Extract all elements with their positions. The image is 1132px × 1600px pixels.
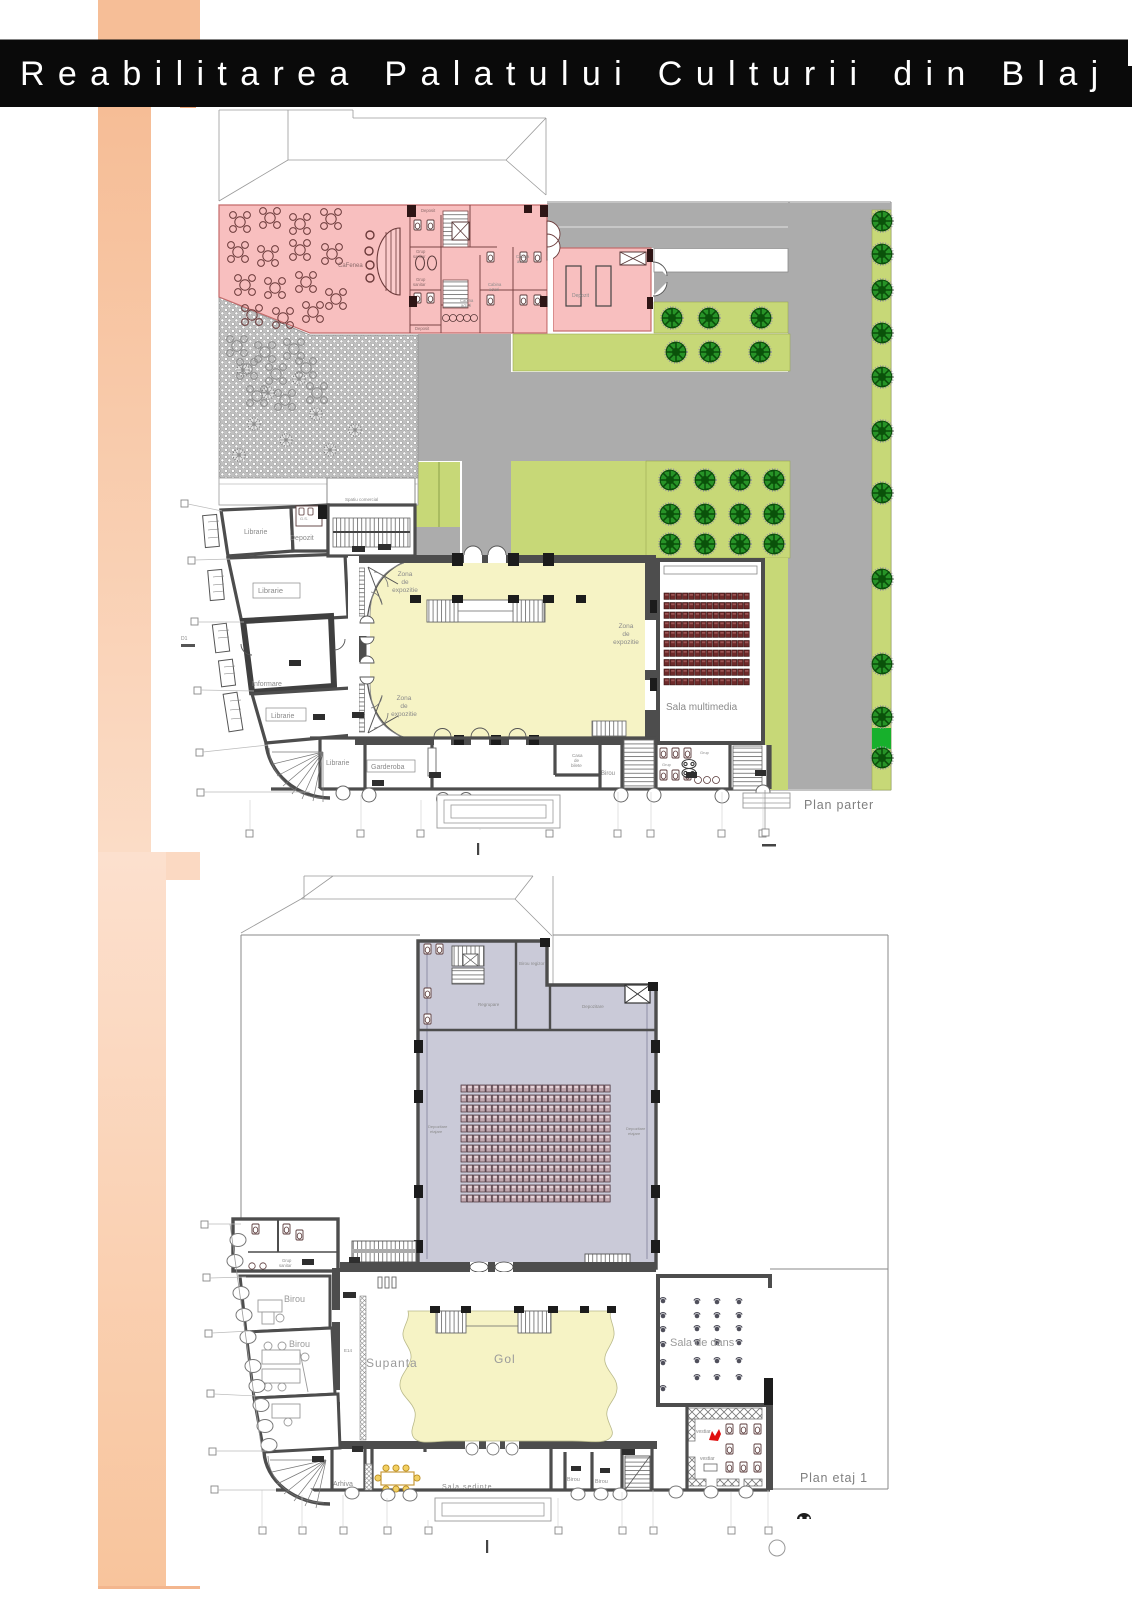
svg-text:Deposit: Deposit — [421, 208, 436, 213]
svg-text:E14: E14 — [344, 1348, 353, 1353]
svg-text:Birou regizor: Birou regizor — [519, 961, 545, 966]
svg-text:sanitar: sanitar — [413, 254, 426, 259]
svg-text:de: de — [400, 703, 408, 710]
svg-text:Librarie: Librarie — [258, 586, 283, 595]
svg-text:bilete: bilete — [571, 763, 582, 768]
svg-text:expozitie: expozitie — [392, 587, 418, 594]
svg-text:CaFenea: CaFenea — [338, 263, 363, 269]
svg-text:etajare: etajare — [628, 1131, 641, 1136]
svg-text:actori: actori — [517, 259, 527, 264]
svg-text:Grup: Grup — [662, 762, 672, 767]
svg-text:Deposit: Deposit — [415, 326, 430, 331]
svg-text:Librarie: Librarie — [244, 529, 267, 536]
svg-text:Supanta: Supanta — [366, 1356, 418, 1370]
svg-text:Zona: Zona — [397, 695, 412, 702]
svg-text:Librarie: Librarie — [271, 713, 294, 720]
svg-text:vestiar: vestiar — [696, 1429, 711, 1435]
svg-text:Spatiu comercial: Spatiu comercial — [345, 497, 378, 502]
svg-text:Depozitare: Depozitare — [582, 1004, 604, 1009]
svg-text:Plan parter: Plan parter — [804, 798, 874, 812]
svg-text:Grup: Grup — [700, 750, 710, 755]
svg-text:Birou: Birou — [289, 1339, 310, 1349]
svg-text:de: de — [622, 631, 630, 638]
svg-text:vestiar: vestiar — [700, 1456, 715, 1462]
svg-text:Plan etaj 1: Plan etaj 1 — [800, 1471, 868, 1485]
svg-text:Garderoba: Garderoba — [371, 764, 405, 771]
svg-text:Regrupare: Regrupare — [478, 1002, 500, 1007]
svg-text:Birou: Birou — [595, 1479, 608, 1485]
svg-text:de: de — [401, 579, 409, 586]
svg-text:Zona: Zona — [619, 623, 634, 630]
svg-text:sanitar: sanitar — [279, 1263, 292, 1268]
svg-text:Sala multimedia: Sala multimedia — [666, 702, 738, 713]
svg-text:sanitar: sanitar — [413, 282, 426, 287]
svg-text:Birou: Birou — [284, 1294, 305, 1304]
svg-text:D1: D1 — [181, 636, 188, 642]
svg-text:actori: actori — [489, 287, 499, 292]
svg-text:G.S.: G.S. — [300, 516, 308, 521]
svg-text:Birou: Birou — [567, 1477, 580, 1483]
svg-text:actori: actori — [461, 303, 471, 308]
svg-text:Birou: Birou — [601, 771, 615, 777]
svg-text:Depozit: Depozit — [572, 293, 590, 299]
svg-text:expozitie: expozitie — [391, 711, 417, 718]
svg-text:Librarie: Librarie — [326, 760, 349, 767]
svg-text:Informare: Informare — [252, 681, 282, 688]
svg-text:expozitie: expozitie — [613, 639, 639, 646]
svg-text:Reabilitarea Palatului Culturi: Reabilitarea Palatului Culturii din Blaj… — [20, 55, 1132, 93]
svg-text:Sala de dans: Sala de dans — [670, 1337, 735, 1349]
svg-text:Zona: Zona — [398, 571, 413, 578]
svg-text:etajare: etajare — [430, 1129, 443, 1134]
svg-text:Depozit: Depozit — [290, 535, 314, 542]
svg-text:Sala sedinte: Sala sedinte — [442, 1484, 493, 1491]
svg-text:Gol: Gol — [494, 1352, 516, 1366]
